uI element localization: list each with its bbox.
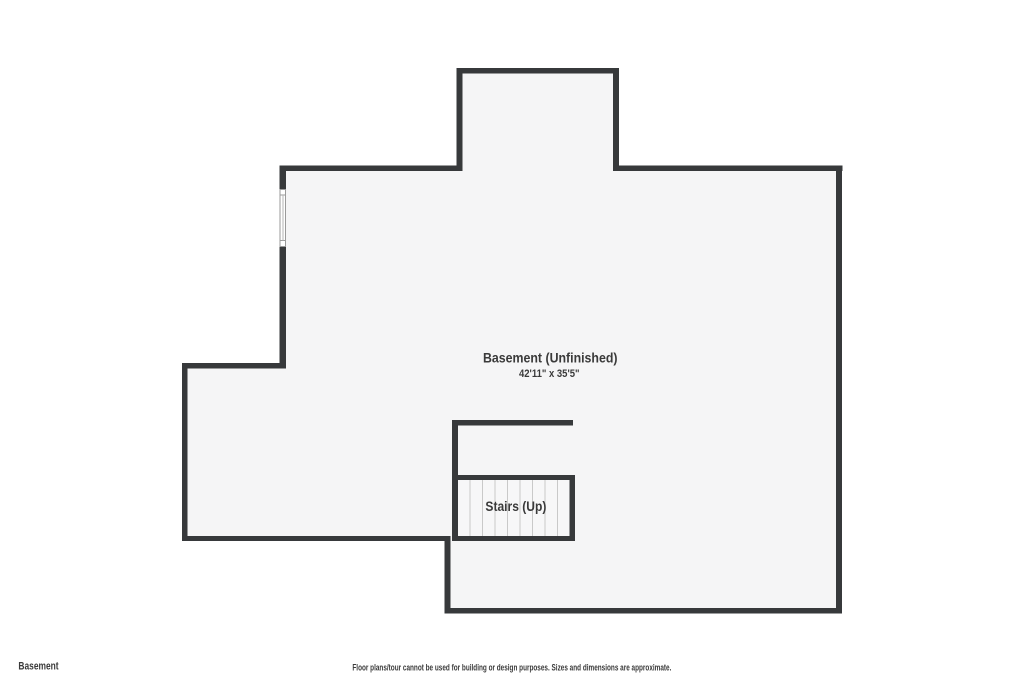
svg-text:Basement: Basement <box>18 660 58 672</box>
svg-text:Floor plans/tour cannot be use: Floor plans/tour cannot be used for buil… <box>352 663 671 673</box>
svg-text:Stairs (Up): Stairs (Up) <box>485 499 546 514</box>
svg-text:Basement (Unfinished): Basement (Unfinished) <box>483 350 618 366</box>
svg-text:42'11" x 35'5": 42'11" x 35'5" <box>519 368 580 380</box>
